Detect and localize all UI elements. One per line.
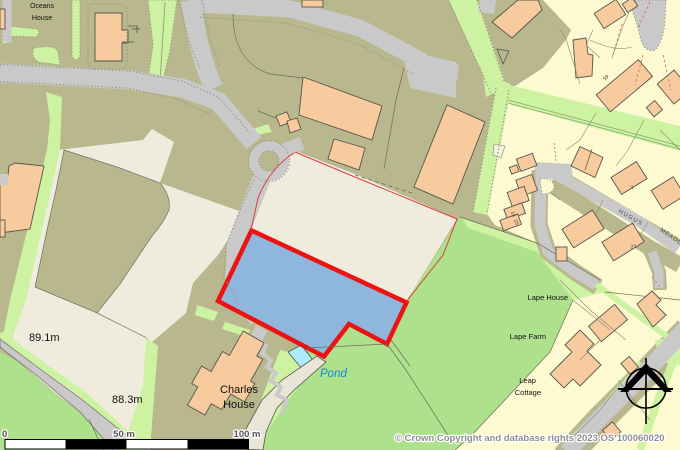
svg-text:© Crown Copyright and database: © Crown Copyright and database rights 20… [395, 433, 664, 444]
svg-text:House: House [32, 15, 52, 22]
svg-text:Cottage: Cottage [515, 388, 541, 397]
svg-text:Charles: Charles [220, 384, 258, 396]
svg-text:50 m: 50 m [113, 429, 135, 440]
svg-text:Lape House: Lape House [528, 293, 568, 302]
svg-text:House: House [223, 399, 255, 411]
svg-text:Leap: Leap [519, 376, 536, 385]
svg-text:100 m: 100 m [234, 429, 261, 440]
svg-text:89.1m: 89.1m [29, 332, 60, 344]
svg-text:Lape Farm: Lape Farm [510, 332, 546, 341]
svg-text:88.3m: 88.3m [112, 394, 143, 406]
svg-text:Pond: Pond [320, 368, 347, 380]
svg-text:0: 0 [2, 429, 7, 440]
svg-text:Oceans: Oceans [30, 3, 55, 10]
